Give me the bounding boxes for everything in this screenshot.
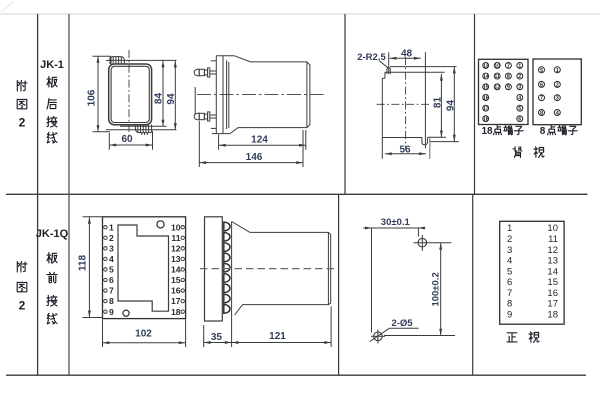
- svg-text:5: 5: [518, 106, 521, 112]
- svg-text:94: 94: [166, 93, 177, 105]
- svg-text:102: 102: [135, 328, 152, 339]
- svg-text:2: 2: [556, 82, 559, 88]
- svg-text:8: 8: [540, 126, 546, 137]
- svg-text:35: 35: [211, 332, 223, 343]
- svg-text:1: 1: [556, 68, 559, 74]
- svg-text:8: 8: [507, 74, 510, 80]
- svg-text:2: 2: [19, 115, 26, 129]
- svg-text:9: 9: [109, 307, 114, 317]
- svg-text:8: 8: [507, 299, 512, 310]
- svg-text:48: 48: [401, 49, 413, 60]
- svg-text:6: 6: [540, 82, 543, 88]
- svg-text:56: 56: [399, 144, 411, 155]
- svg-text:8: 8: [109, 296, 114, 306]
- svg-text:14: 14: [171, 265, 181, 275]
- svg-text:5: 5: [109, 265, 114, 275]
- svg-text:11: 11: [171, 233, 180, 243]
- svg-text:10: 10: [547, 223, 558, 234]
- svg-text:JK-1: JK-1: [40, 59, 64, 71]
- svg-text:13: 13: [483, 63, 489, 69]
- svg-text:121: 121: [269, 331, 286, 342]
- svg-text:15: 15: [171, 275, 181, 285]
- svg-text:13: 13: [547, 256, 558, 267]
- svg-text:17: 17: [483, 106, 489, 112]
- svg-text:12: 12: [171, 243, 181, 253]
- svg-text:11: 11: [494, 74, 500, 80]
- svg-text:7: 7: [507, 63, 510, 69]
- svg-text:6: 6: [507, 277, 512, 288]
- svg-text:10: 10: [171, 222, 181, 232]
- svg-text:18: 18: [481, 126, 493, 137]
- svg-text:6: 6: [518, 117, 521, 123]
- svg-text:16: 16: [483, 95, 489, 101]
- svg-text:4: 4: [518, 95, 521, 101]
- svg-text:7: 7: [507, 288, 512, 299]
- svg-text:2: 2: [109, 233, 114, 243]
- svg-text:12: 12: [494, 85, 500, 91]
- svg-text:2: 2: [518, 74, 521, 80]
- svg-text:4: 4: [109, 254, 114, 264]
- svg-text:1: 1: [507, 223, 512, 234]
- svg-text:124: 124: [251, 134, 268, 145]
- svg-text:15: 15: [547, 277, 558, 288]
- svg-text:17: 17: [547, 299, 558, 310]
- svg-text:3: 3: [507, 245, 512, 256]
- svg-text:146: 146: [246, 152, 263, 163]
- svg-text:11: 11: [548, 234, 558, 245]
- svg-text:5: 5: [507, 266, 512, 277]
- svg-text:5: 5: [540, 68, 543, 74]
- svg-text:81: 81: [433, 97, 444, 109]
- svg-text:3: 3: [556, 96, 559, 102]
- svg-text:94: 94: [446, 100, 457, 112]
- svg-text:17: 17: [171, 296, 181, 306]
- svg-text:16: 16: [547, 288, 558, 299]
- svg-text:2: 2: [19, 298, 26, 312]
- svg-text:2-Ø5: 2-Ø5: [391, 318, 413, 329]
- svg-text:1: 1: [518, 63, 521, 69]
- svg-text:7: 7: [540, 96, 543, 102]
- svg-text:9: 9: [507, 309, 512, 320]
- svg-text:10: 10: [494, 63, 500, 69]
- svg-text:14: 14: [483, 74, 489, 80]
- svg-text:18: 18: [483, 117, 489, 123]
- svg-text:100±0.2: 100±0.2: [430, 272, 441, 306]
- svg-text:6: 6: [109, 275, 114, 285]
- svg-text:4: 4: [507, 256, 512, 267]
- svg-text:15: 15: [483, 85, 489, 91]
- svg-text:13: 13: [171, 254, 181, 264]
- svg-text:106: 106: [87, 89, 98, 106]
- svg-text:12: 12: [547, 245, 558, 256]
- svg-text:14: 14: [547, 266, 558, 277]
- svg-text:16: 16: [171, 286, 181, 296]
- svg-text:9: 9: [507, 85, 510, 91]
- svg-text:7: 7: [109, 286, 114, 296]
- svg-text:3: 3: [109, 243, 114, 253]
- svg-text:60: 60: [121, 134, 133, 145]
- svg-text:118: 118: [77, 254, 88, 271]
- svg-text:18: 18: [547, 309, 558, 320]
- svg-text:JK-1Q: JK-1Q: [36, 228, 69, 240]
- svg-text:2-R2.5: 2-R2.5: [357, 52, 386, 63]
- svg-text:8: 8: [540, 111, 543, 117]
- svg-text:3: 3: [518, 85, 521, 91]
- svg-text:2: 2: [507, 234, 512, 245]
- svg-text:30±0.1: 30±0.1: [381, 217, 411, 228]
- svg-text:1: 1: [109, 222, 114, 232]
- svg-text:18: 18: [171, 307, 181, 317]
- svg-text:84: 84: [154, 93, 165, 105]
